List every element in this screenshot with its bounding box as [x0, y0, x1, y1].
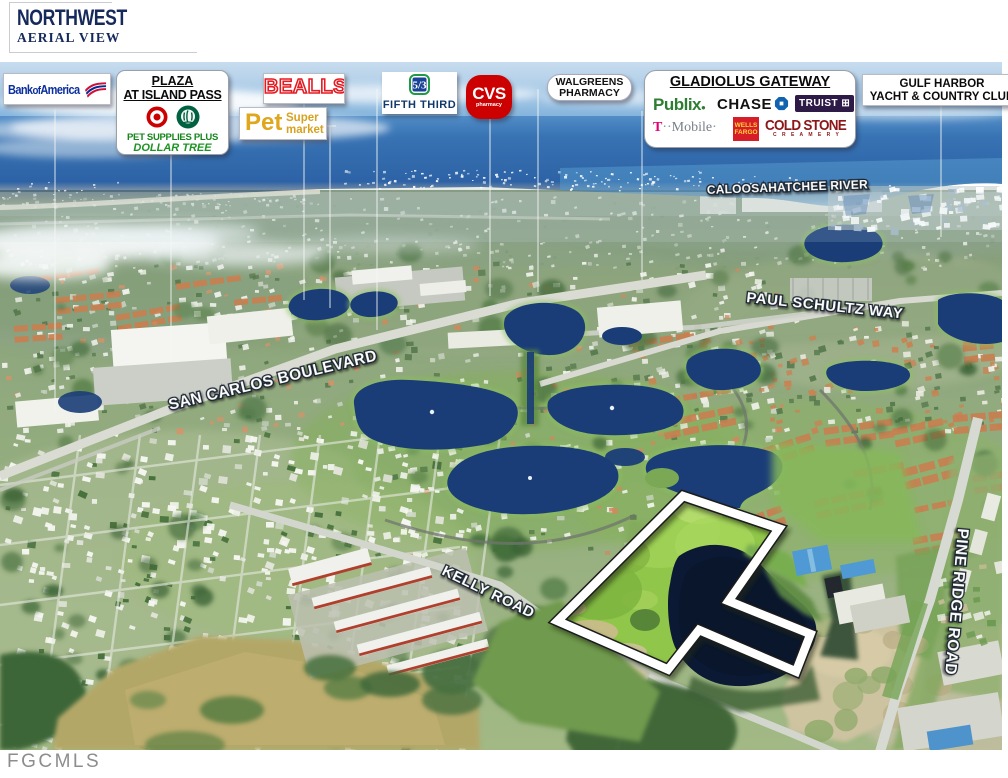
svg-text:5/3: 5/3	[412, 80, 427, 92]
